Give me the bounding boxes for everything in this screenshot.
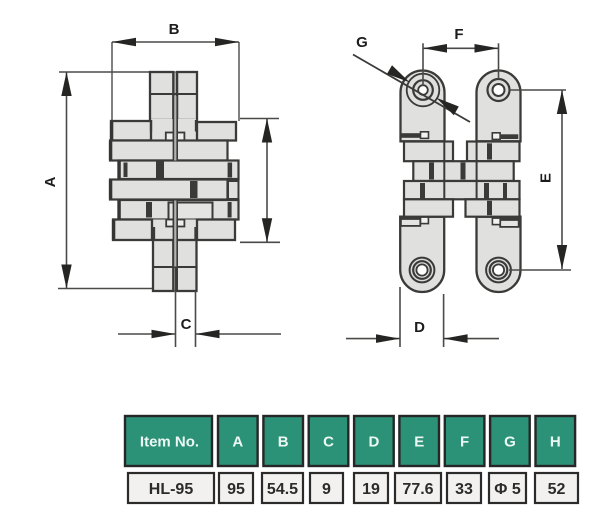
svg-text:Item No.: Item No. bbox=[140, 434, 199, 451]
svg-text:F: F bbox=[454, 26, 463, 43]
svg-text:C: C bbox=[181, 316, 192, 333]
svg-text:HL-95: HL-95 bbox=[149, 481, 194, 498]
svg-text:19: 19 bbox=[362, 481, 380, 498]
svg-text:E: E bbox=[538, 173, 555, 183]
svg-text:E: E bbox=[414, 434, 424, 451]
svg-text:54.5: 54.5 bbox=[267, 481, 298, 498]
svg-text:Φ 5: Φ 5 bbox=[494, 481, 521, 498]
svg-text:95: 95 bbox=[227, 481, 245, 498]
svg-text:H: H bbox=[550, 434, 561, 451]
svg-text:F: F bbox=[460, 434, 469, 451]
svg-text:52: 52 bbox=[548, 481, 566, 498]
svg-text:G: G bbox=[356, 34, 368, 51]
svg-text:9: 9 bbox=[322, 481, 331, 498]
svg-text:D: D bbox=[368, 434, 379, 451]
svg-text:33: 33 bbox=[455, 481, 473, 498]
svg-text:D: D bbox=[414, 319, 425, 336]
svg-text:A: A bbox=[232, 434, 243, 451]
svg-text:C: C bbox=[323, 434, 334, 451]
svg-text:B: B bbox=[278, 434, 289, 451]
svg-text:77.6: 77.6 bbox=[402, 481, 433, 498]
svg-text:A: A bbox=[42, 176, 59, 187]
svg-text:B: B bbox=[169, 21, 180, 38]
svg-text:G: G bbox=[504, 434, 516, 451]
